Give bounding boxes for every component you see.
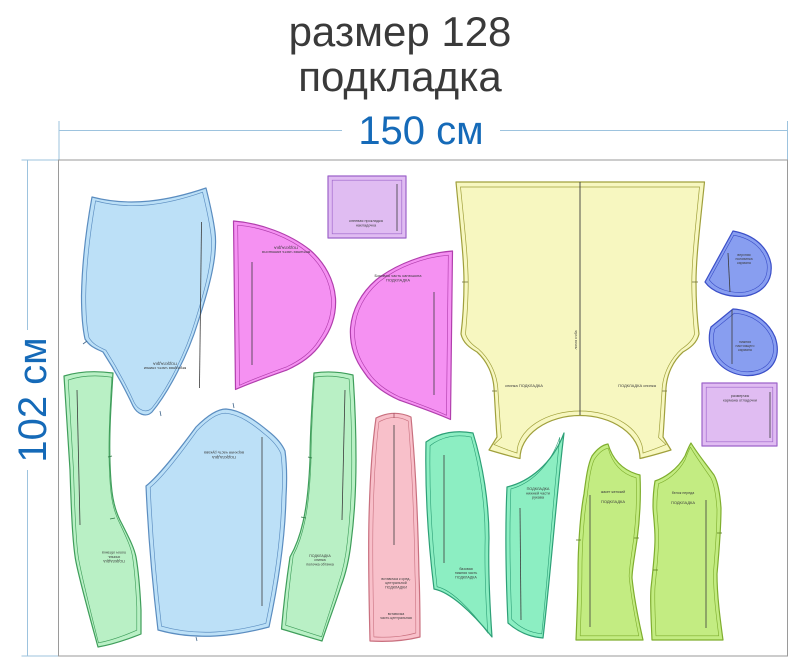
svg-text:подкладка: подкладка	[298, 53, 502, 100]
svg-text:150 см: 150 см	[358, 109, 483, 153]
svg-text:ПОДКЛАДКА: ПОДКЛАДКА	[601, 499, 625, 504]
svg-text:белок переда: белок переда	[672, 491, 695, 495]
svg-text:ПОДКЛАДКА: ПОДКЛАДКА	[671, 500, 695, 505]
svg-text:жакет женский: жакет женский	[601, 490, 625, 494]
svg-text:верхняяполовинкакармана: верхняяполовинкакармана	[735, 253, 752, 265]
svg-text:спинка ПОДКЛАДКА: спинка ПОДКЛАДКА	[505, 383, 543, 388]
svg-text:линия сгиба: линия сгиба	[574, 330, 578, 349]
svg-text:102 см: 102 см	[11, 337, 55, 462]
svg-text:размер 128: размер 128	[289, 8, 512, 55]
svg-text:ПОДКЛАДКА спинка: ПОДКЛАДКА спинка	[618, 383, 657, 388]
